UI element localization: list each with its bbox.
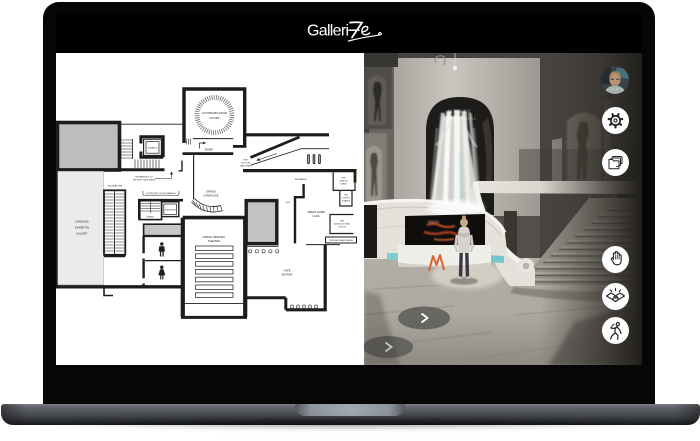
svg-text:MIDDLE: MIDDLE [340, 181, 348, 183]
svg-text:CONTEMPLATIVE: CONTEMPLATIVE [202, 111, 227, 115]
svg-text:MMXIV: MMXIV [428, 220, 440, 224]
svg-text:GIFT: GIFT [286, 202, 292, 204]
svg-text:THE: THE [341, 178, 346, 180]
svg-text:HISTORY: HISTORY [241, 163, 251, 165]
svg-text:EXHIBITION: EXHIBITION [75, 227, 89, 230]
svg-text:NORTH: NORTH [342, 198, 350, 200]
svg-text:CAFÉ: CAFÉ [284, 268, 291, 273]
svg-text:SEATING: SEATING [281, 273, 292, 277]
svg-text:OPRAH WINFREY: OPRAH WINFREY [203, 235, 226, 239]
svg-text:STAIRCASE: STAIRCASE [203, 194, 218, 198]
svg-text:ELEVATORS: ELEVATORS [165, 208, 177, 211]
svg-text:CHANGING: CHANGING [75, 221, 89, 224]
svg-text:THEATER: THEATER [208, 239, 220, 243]
svg-text:COAST: COAST [340, 183, 348, 186]
svg-text:THE: THE [344, 195, 349, 197]
svg-text:GRAND: GRAND [206, 190, 216, 194]
svg-text:AGRICULTURAL: AGRICULTURAL [334, 223, 351, 226]
svg-text:ESCALATORS: ESCALATORS [108, 184, 123, 187]
svg-text:Galleri: Galleri [307, 23, 348, 40]
svg-text:GALLERIES: GALLERIES [240, 165, 253, 168]
svg-text:ELEVATOR: ELEVATOR [148, 147, 158, 150]
svg-text:SWEET HOME: SWEET HOME [307, 210, 325, 214]
svg-text:STATES: STATES [342, 200, 350, 203]
svg-text:GALLERY: GALLERY [76, 233, 88, 236]
svg-text:HISTORY GALLERIES: HISTORY GALLERIES [133, 179, 156, 182]
svg-text:RAMP: RAMP [205, 148, 213, 152]
svg-text:STAIRS: STAIRS [147, 216, 155, 219]
svg-text:SOUTH: SOUTH [338, 227, 346, 229]
svg-text:A CENTURY IN THE MAKING: A CENTURY IN THE MAKING [146, 192, 176, 195]
svg-text:THE WEST/FAIR RANGE: THE WEST/FAIR RANGE [329, 239, 354, 242]
svg-text:COURT: COURT [209, 116, 220, 120]
svg-text:ENTRANCES TO: ENTRANCES TO [135, 175, 152, 178]
svg-text:THE: THE [340, 221, 345, 223]
svg-text:EXIT: EXIT [244, 160, 250, 162]
svg-text:ENTRANCE: ENTRANCE [295, 178, 308, 181]
